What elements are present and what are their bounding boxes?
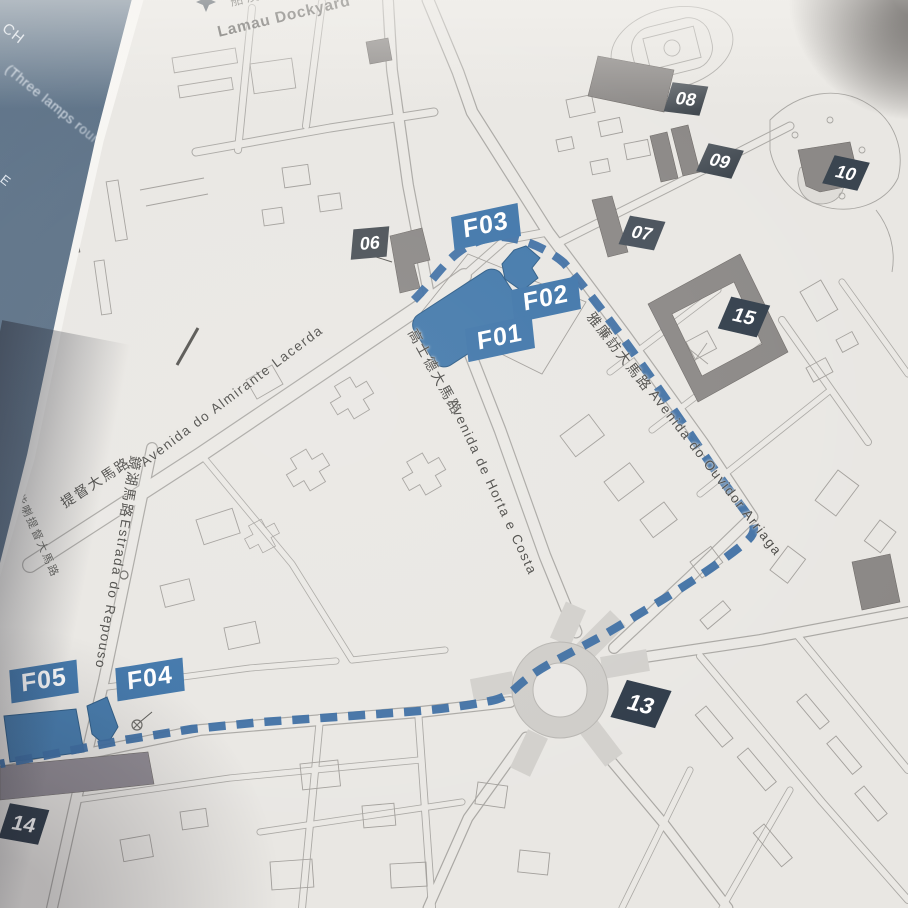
top-right-blocks <box>556 95 651 175</box>
building-top-small <box>366 38 392 64</box>
map-symbols <box>120 0 392 730</box>
bottom-center-blocks <box>120 760 550 890</box>
building-08 <box>588 56 674 112</box>
dockyard-blocks <box>94 48 342 315</box>
book-photo: Lamau Dockyard 船澳 提督大馬路 Avenida do Almir… <box>0 0 908 908</box>
marker-06: 06 <box>351 226 390 259</box>
compass-star-icon <box>196 0 216 12</box>
street-map <box>0 0 908 908</box>
ramp-marking <box>177 328 198 365</box>
leader-f04 <box>140 712 152 722</box>
blue-buildings <box>4 246 540 762</box>
left-page-fragment-top: CH <box>0 20 28 48</box>
bus-stop-icon <box>132 720 142 730</box>
building-right <box>852 554 900 610</box>
left-page-fragment-lower: E <box>0 172 13 189</box>
